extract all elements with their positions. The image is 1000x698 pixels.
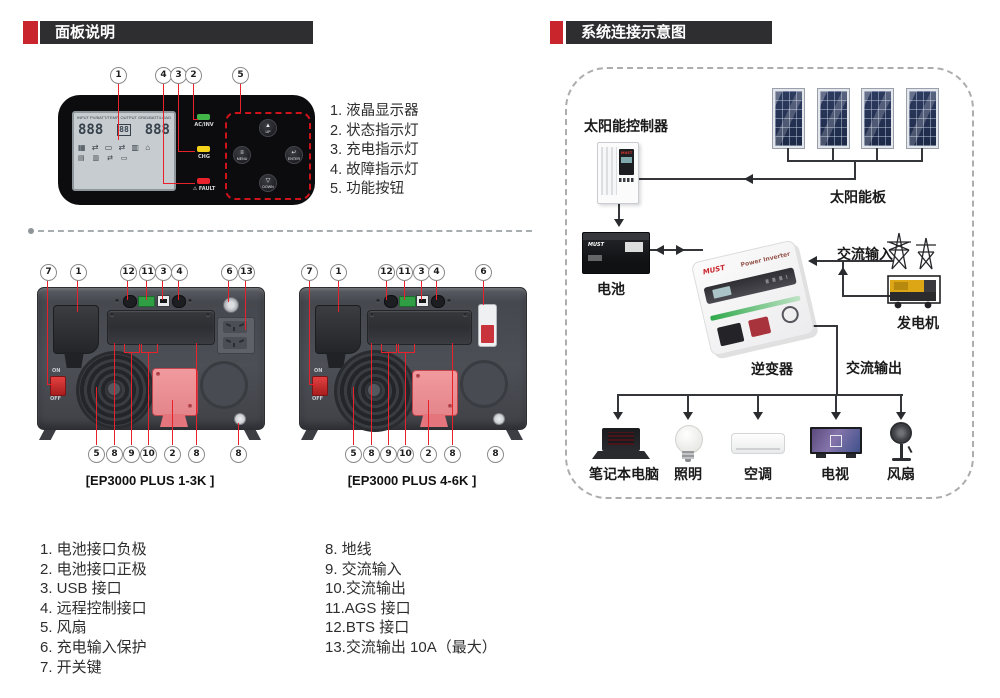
- callout-line: [127, 279, 128, 300]
- screw: [156, 372, 160, 376]
- power-switch: [312, 376, 328, 396]
- callout-line: [309, 384, 316, 385]
- callout-12: 12: [378, 264, 395, 281]
- power-switch: [50, 376, 66, 396]
- ac-outlet-10a: [217, 317, 255, 354]
- arrowhead-left: [808, 256, 817, 266]
- solar-panel-icon: [862, 89, 893, 148]
- tv-icon: [810, 427, 862, 454]
- arrowhead-down: [753, 412, 763, 420]
- control-panel: INPUT PV/BATT/TEMP OUTPUT GRID/BATT/LOAD…: [58, 95, 315, 205]
- fault-indicator-led: [197, 178, 210, 184]
- legend-item: 11.AGS 接口: [325, 599, 497, 619]
- legend-item: 6. 充电输入保护: [40, 638, 147, 658]
- callout-line: [162, 279, 163, 300]
- callout-line: [245, 279, 246, 330]
- callout-line: [196, 343, 197, 445]
- legend-item: 3. 充电指示灯: [330, 141, 419, 161]
- callout-8: 8: [230, 446, 247, 463]
- screw: [447, 299, 451, 303]
- inverter-outlet: [780, 304, 800, 324]
- callout-line: [172, 400, 173, 445]
- callout-line: [178, 151, 195, 152]
- callout-line: [193, 119, 198, 120]
- screw: [188, 404, 192, 408]
- lightbulb-icon: [675, 425, 701, 463]
- lcd-digits-center: 88: [117, 124, 131, 136]
- lcd-digits-left: 888: [78, 123, 103, 137]
- menu-button: ≡ MENU: [233, 146, 251, 164]
- terminal-cover: [107, 310, 215, 345]
- callout-line: [238, 423, 239, 445]
- battery-icon: MUST: [582, 232, 650, 274]
- separator-dot: [28, 228, 34, 234]
- laptop-icon: [592, 428, 650, 460]
- wire-ac-output: [836, 325, 838, 396]
- brand-text: MUST: [702, 264, 726, 277]
- keypad-outline: ▲ UP ≡ MENU ↵ ENTER ▽ DOWN: [225, 112, 311, 200]
- callout-8: 8: [487, 446, 504, 463]
- callout-11: 11: [396, 264, 413, 281]
- callout-line: [47, 384, 54, 385]
- legend-item: 8. 地线: [325, 540, 497, 560]
- callout-1: 1: [110, 67, 127, 84]
- legend-item: 1. 电池接口负极: [40, 540, 147, 560]
- callout-3: 3: [155, 264, 172, 281]
- panel-legend-list: 1. 液晶显示器 2. 状态指示灯 3. 充电指示灯 4. 故障指示灯 5. 功…: [330, 102, 419, 200]
- solar-panel-icon: [773, 89, 804, 148]
- legend-item: 2. 状态指示灯: [330, 122, 419, 142]
- callout-line: [388, 352, 389, 445]
- generator-icon: [886, 272, 944, 310]
- wire: [854, 160, 856, 179]
- callout-line: [371, 343, 372, 445]
- right-section-title: 系统连接示意图: [566, 21, 772, 44]
- ac-input-label: 交流输入: [837, 244, 893, 264]
- battery-negative-terminal: [53, 305, 99, 354]
- callout-10: 10: [397, 446, 414, 463]
- battery-positive-cone: [420, 414, 448, 427]
- lighting-label: 照明: [674, 464, 702, 484]
- remote-port: [172, 295, 186, 308]
- screw: [370, 313, 374, 317]
- callout-line: [452, 343, 453, 445]
- usb-port: [416, 295, 429, 307]
- callout-6: 6: [475, 264, 492, 281]
- callout-12: 12: [120, 264, 137, 281]
- callout-line: [77, 279, 78, 312]
- legend-item: 9. 交流输入: [325, 560, 497, 580]
- legend-item: 10.交流输出: [325, 579, 497, 599]
- controller-display: MUST: [619, 149, 634, 175]
- switch-off-label: OFF: [312, 397, 323, 402]
- callout-9: 9: [123, 446, 140, 463]
- terminal-cover: [367, 310, 472, 345]
- ac-output-label: 交流输出: [846, 358, 902, 378]
- legend-item: 1. 液晶显示器: [330, 102, 419, 122]
- charge-input-breaker: [223, 297, 239, 313]
- solar-controller-icon: MUST: [597, 142, 639, 204]
- screw: [110, 313, 114, 317]
- callout-line: [131, 352, 132, 445]
- legend-item: 2. 电池接口正极: [40, 560, 147, 580]
- drop-wire: [757, 396, 759, 413]
- air-conditioner-icon: [731, 433, 785, 454]
- callout-line: [240, 83, 241, 112]
- right-header-red-mark: [550, 21, 563, 44]
- screw: [115, 299, 119, 303]
- switch-on-label: ON: [314, 369, 322, 374]
- lcd-digits-right: 888: [145, 123, 170, 137]
- bts-port: [123, 295, 137, 308]
- callout-line: [118, 83, 119, 140]
- callout-line: [47, 279, 48, 385]
- controller-buttons: [619, 178, 634, 182]
- callout-bracket: [141, 344, 158, 353]
- brand-text: MUST: [588, 242, 604, 248]
- chg-indicator-label: CHG: [187, 154, 221, 160]
- callout-5: 5: [232, 67, 249, 84]
- arrowhead-right: [676, 245, 685, 255]
- callout-5: 5: [88, 446, 105, 463]
- callout-line: [163, 83, 164, 183]
- arrowhead-up: [838, 267, 848, 275]
- manual-page: 面板说明 1 4 3 2 5 INPUT PV/BATT/TEMP OUTPUT…: [0, 0, 1000, 698]
- ac-inv-indicator-label: AC/INV: [187, 122, 221, 128]
- callout-bracket: [398, 344, 415, 353]
- callout-9: 9: [380, 446, 397, 463]
- callout-2: 2: [185, 67, 202, 84]
- wire-generator: [842, 295, 890, 297]
- callout-line: [178, 279, 179, 300]
- lcd-status-icons-row2: ▤ ▥ ⇄ ▭: [74, 152, 174, 162]
- arrowhead-down: [613, 412, 623, 420]
- callout-line: [193, 83, 194, 119]
- fan-label: 风扇: [887, 464, 915, 484]
- enter-button: ↵ ENTER: [285, 146, 303, 164]
- callout-2: 2: [420, 446, 437, 463]
- battery-positive-cone: [160, 414, 188, 427]
- ac-inv-indicator-led: [197, 114, 210, 120]
- callout-line: [114, 343, 115, 445]
- callout-4: 4: [171, 264, 188, 281]
- callout-5: 5: [345, 446, 362, 463]
- callout-line: [309, 279, 310, 385]
- brand-text: MUST: [621, 151, 632, 155]
- callout-line: [148, 352, 149, 445]
- standing-fan-icon: [889, 422, 915, 462]
- callout-13: 13: [238, 264, 255, 281]
- ground-screw: [493, 413, 505, 425]
- callout-line: [178, 83, 179, 151]
- lcd-status-icons: ▦ ⇄ ▭ ⇄ ▥ ⌂: [74, 137, 174, 152]
- callout-1: 1: [70, 264, 87, 281]
- inverter-terminal-block: [717, 323, 745, 347]
- callout-line: [146, 279, 147, 300]
- screw: [376, 299, 380, 303]
- switch-on-label: ON: [52, 369, 60, 374]
- chg-indicator-led: [197, 146, 210, 152]
- callout-line: [405, 352, 406, 445]
- solar-controller-label: 太阳能控制器: [584, 116, 668, 136]
- battery-negative-terminal: [315, 305, 361, 354]
- legend-item: 5. 功能按钮: [330, 180, 419, 200]
- tv-label: 电视: [821, 464, 849, 484]
- lcd-display: INPUT PV/BATT/TEMP OUTPUT GRID/BATT/LOAD…: [72, 111, 176, 191]
- arrowhead-down: [831, 412, 841, 420]
- usb-port: [157, 295, 170, 307]
- legend-item: 4. 故障指示灯: [330, 161, 419, 181]
- callout-2: 2: [164, 446, 181, 463]
- callout-7: 7: [40, 264, 57, 281]
- callout-line: [228, 279, 229, 302]
- callout-bracket: [381, 344, 397, 353]
- ground-screw: [234, 413, 246, 425]
- remote-port: [431, 295, 445, 308]
- arrowhead-down: [683, 412, 693, 420]
- legend-item: 3. USB 接口: [40, 579, 147, 599]
- lcd-input-label: INPUT PV/BATT/TEMP: [77, 115, 119, 120]
- fault-indicator-label: ⚠ FAULT: [187, 186, 221, 192]
- separator-line: [38, 230, 532, 232]
- callout-8: 8: [444, 446, 461, 463]
- left-section-title: 面板说明: [40, 21, 313, 44]
- left-header-red-mark: [23, 21, 38, 44]
- callout-bracket: [124, 344, 140, 353]
- callout-8: 8: [106, 446, 123, 463]
- solar-panel-icon: [818, 89, 849, 148]
- drop-wire: [617, 396, 619, 413]
- air-conditioner-label: 空调: [744, 464, 772, 484]
- callout-line: [428, 400, 429, 445]
- callout-4: 4: [428, 264, 445, 281]
- laptop-label: 笔记本电脑: [589, 464, 659, 484]
- callout-11: 11: [139, 264, 156, 281]
- generator-label: 发电机: [897, 313, 939, 333]
- controller-heatsink: [601, 147, 617, 195]
- drop-wire: [900, 396, 902, 413]
- callout-line: [436, 279, 437, 300]
- arrowhead-down: [896, 412, 906, 420]
- fan-hub: [366, 382, 382, 398]
- inverter-caption: Power Inverter: [740, 251, 791, 269]
- arrowhead-down: [614, 219, 624, 227]
- callout-line: [353, 387, 354, 445]
- callout-8: 8: [363, 446, 380, 463]
- load-bus: [617, 394, 903, 396]
- port-legend-right: 8. 地线 9. 交流输入 10.交流输出 11.AGS 接口 12.BTS 接…: [325, 540, 497, 658]
- battery-label: 电池: [597, 279, 625, 299]
- callout-line: [338, 279, 339, 312]
- arrowhead-left: [655, 245, 664, 255]
- port-legend-left: 1. 电池接口负极 2. 电池接口正极 3. USB 接口 4. 远程控制接口 …: [40, 540, 147, 677]
- legend-item: 12.BTS 接口: [325, 618, 497, 638]
- callout-line: [386, 279, 387, 300]
- callout-line: [96, 387, 97, 445]
- drop-wire: [835, 396, 837, 413]
- callout-line: [421, 279, 422, 300]
- legend-item: 13.交流输出 10A（最大）: [325, 638, 497, 658]
- screw: [206, 313, 210, 317]
- callout-line: [404, 279, 405, 300]
- arrowhead-left: [744, 174, 753, 184]
- solar-panel-icon: [907, 89, 938, 148]
- callout-1: 1: [330, 264, 347, 281]
- switch-off-label: OFF: [50, 397, 61, 402]
- screw: [463, 313, 467, 317]
- callout-line: [163, 183, 195, 184]
- drop-wire: [687, 396, 689, 413]
- callout-6: 6: [221, 264, 238, 281]
- legend-item: 4. 远程控制接口: [40, 599, 147, 619]
- down-button: ▽ DOWN: [259, 174, 277, 192]
- charge-input-breaker: [478, 304, 497, 347]
- legend-item: 7. 开关键: [40, 658, 147, 678]
- callout-7: 7: [301, 264, 318, 281]
- ags-port: [399, 296, 416, 307]
- up-button: ▲ UP: [259, 119, 277, 137]
- solar-panels-label: 太阳能板: [830, 187, 886, 207]
- screw: [416, 374, 420, 378]
- callout-10: 10: [140, 446, 157, 463]
- inverter-label: 逆变器: [751, 359, 793, 379]
- legend-item: 5. 风扇: [40, 618, 147, 638]
- inverter-breaker: [748, 316, 771, 337]
- spare-fan-knockout: [460, 360, 508, 408]
- model-label-1-3k: [EP3000 PLUS 1-3K ]: [75, 473, 225, 489]
- spare-fan-knockout: [200, 361, 248, 409]
- model-label-4-6k: [EP3000 PLUS 4-6K ]: [337, 473, 487, 489]
- callout-8: 8: [188, 446, 205, 463]
- callout-line: [483, 279, 484, 305]
- screw: [188, 299, 192, 303]
